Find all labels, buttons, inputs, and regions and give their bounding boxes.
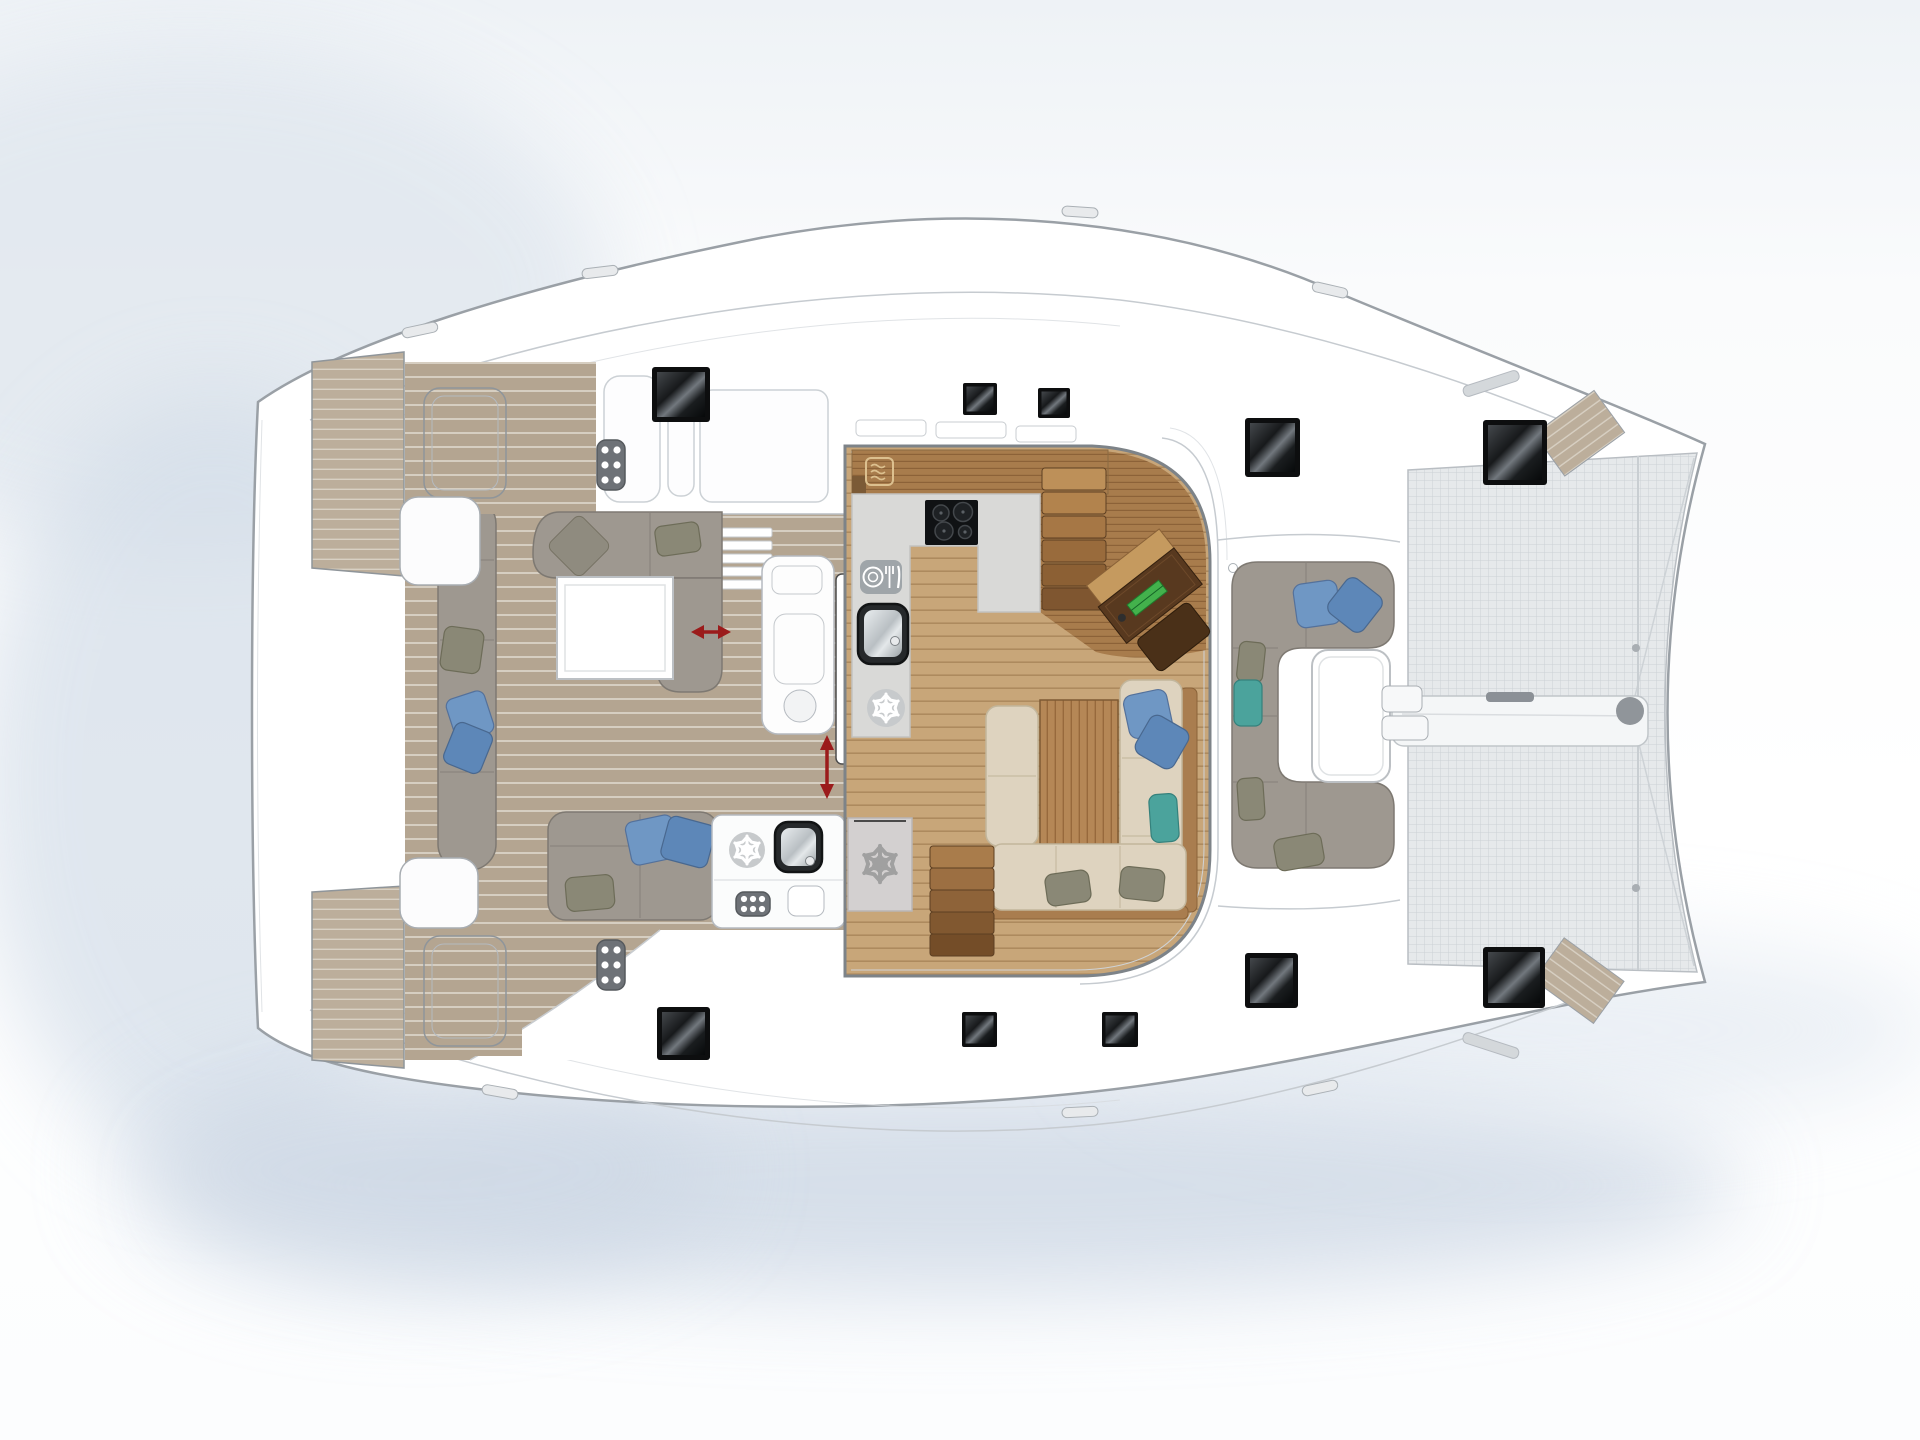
floor-plan-canvas: [0, 0, 1920, 1440]
hatch-skylight: [963, 383, 997, 415]
olive-pillow: [1236, 641, 1266, 683]
speaker-icon: [736, 892, 770, 916]
hatch-skylight: [657, 1007, 710, 1060]
forward-crossbeam: [1392, 696, 1648, 746]
furler-drum: [1616, 697, 1644, 725]
teal-pillow: [1234, 680, 1262, 726]
stove-icon: [925, 500, 978, 545]
boat-floor-plan: [0, 0, 1920, 1440]
bowsprit-fitting: [1486, 692, 1534, 702]
speaker-icon: [597, 940, 625, 990]
wetbar-door: [788, 886, 824, 916]
wetbar-sink-icon: [775, 822, 822, 872]
olive-pillow: [565, 874, 616, 912]
hatch-skylight: [1245, 418, 1300, 477]
dining-table: [1040, 700, 1118, 844]
hatch-skylight: [1483, 947, 1545, 1008]
hatch-skylight: [1245, 953, 1298, 1008]
swim-platform-starboard: [312, 352, 404, 576]
cockpit-coffee-table: [557, 577, 673, 679]
hatch-skylight: [1483, 420, 1547, 485]
saloon: [845, 420, 1238, 984]
forward-cockpit-table: [1312, 650, 1390, 782]
freezer-locker: [848, 818, 912, 911]
dishwasher-icon: [860, 560, 902, 594]
olive-pillow: [439, 625, 485, 674]
cockpit-console: [762, 556, 834, 734]
stairs-port-hull: [930, 846, 994, 956]
hatch-skylight: [962, 1012, 997, 1047]
speaker-icon: [597, 440, 625, 490]
teal-pillow: [1148, 793, 1179, 843]
galley-sink-icon: [858, 604, 908, 664]
transom-seat-port: [400, 858, 478, 928]
hatch-skylight: [1102, 1012, 1138, 1047]
swim-platform-port: [312, 886, 404, 1068]
hatch-skylight: [652, 367, 710, 422]
olive-pillow: [654, 521, 702, 557]
olive-pillow: [1118, 866, 1165, 902]
hatch-skylight: [1038, 388, 1070, 418]
transom-seat-starboard: [400, 497, 480, 585]
olive-pillow: [1237, 777, 1266, 821]
cockpit-aft-bench: [548, 812, 718, 920]
aft-deck-starboard: [405, 370, 522, 514]
cockpit-wet-bar: [712, 815, 845, 928]
olive-pillow: [1044, 869, 1092, 907]
